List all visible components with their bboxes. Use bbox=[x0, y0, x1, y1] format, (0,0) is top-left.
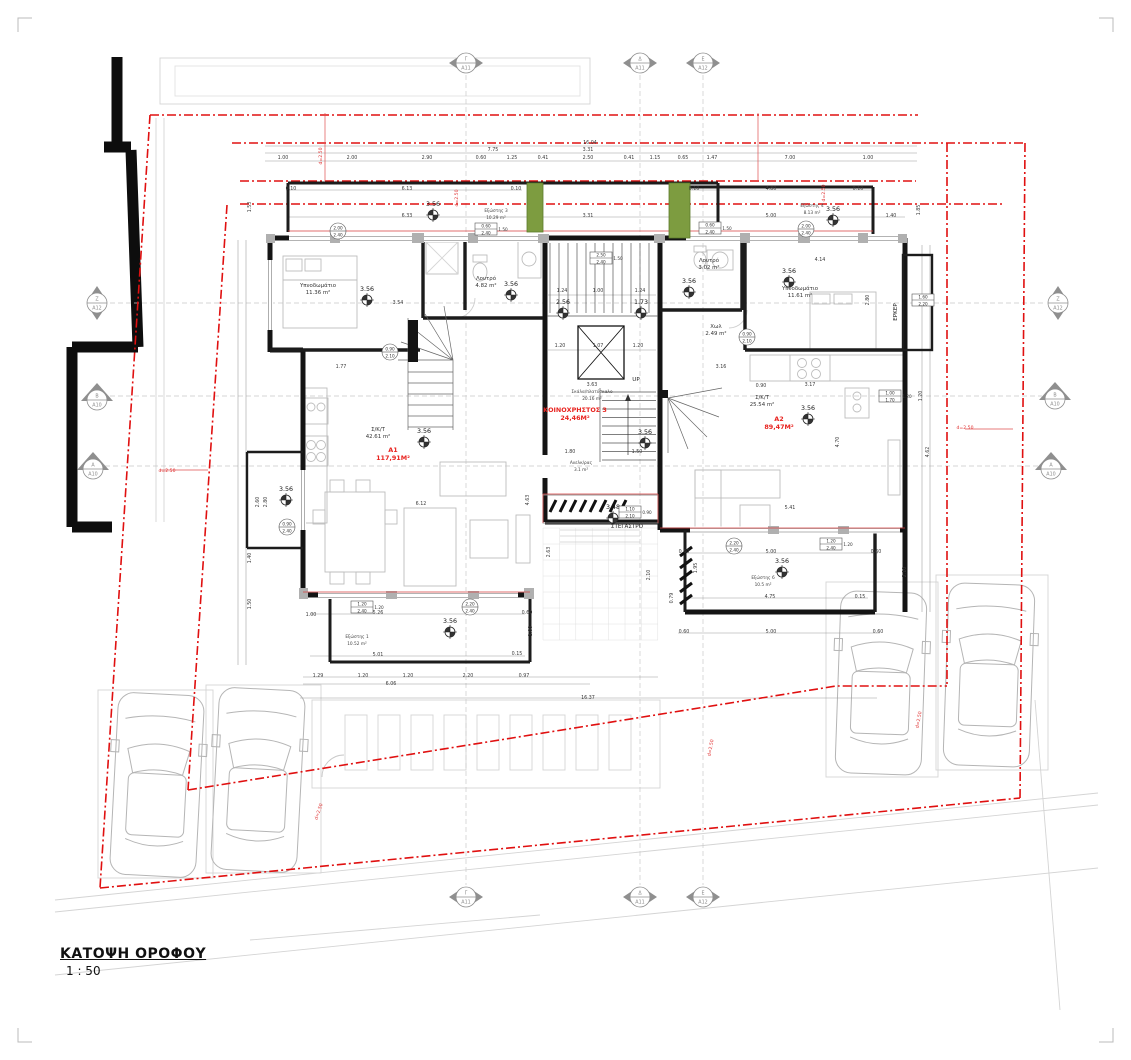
dimension-text: 1.07 bbox=[593, 343, 604, 349]
room-name: Εξώστης 3 bbox=[484, 207, 508, 214]
dimension-text: 0.60 bbox=[522, 610, 533, 616]
dimension-text: 1.80 bbox=[565, 449, 576, 455]
level-value: 3.56 bbox=[360, 286, 374, 293]
room-area: 4.82 m² bbox=[475, 282, 496, 289]
opening-tag-bottom: 2.40 bbox=[465, 609, 475, 614]
setback-note: d=2.50 bbox=[957, 425, 974, 431]
dimension-text: 2.60 bbox=[255, 497, 261, 508]
grid-letter: Ε bbox=[701, 57, 704, 63]
dimension-text: 16.04 bbox=[583, 140, 597, 146]
dimension-text: 0.60 bbox=[871, 549, 882, 555]
dimension-text: 4.70 bbox=[835, 437, 841, 448]
dimension-text: 2.10 bbox=[902, 567, 908, 578]
opening-tag-bottom: 2.40 bbox=[826, 546, 836, 551]
planters bbox=[527, 183, 690, 238]
plan-note: ΣΤΕΓΑΣΤΡΟ bbox=[611, 524, 644, 530]
opening-tag-bottom: 2.20 bbox=[918, 302, 928, 307]
plan-note: ΕΡΚΕΡ bbox=[893, 303, 899, 321]
setback-note: d=2.50 bbox=[318, 147, 324, 164]
setback-note: d=2.50 bbox=[314, 803, 325, 821]
dimension-text: 1.20 bbox=[555, 343, 566, 349]
dimension-text: 1.00 bbox=[593, 288, 604, 294]
dimension-text: 1.40 bbox=[886, 213, 897, 219]
dimension-text: 1.00 bbox=[306, 612, 317, 618]
level-value: 3.56 bbox=[417, 428, 431, 435]
apartment-id: ΚΟΙΝΟΧΡΗΣΤΟΣ 3 bbox=[543, 406, 607, 414]
dimension-text: 1.20 bbox=[633, 343, 644, 349]
dimension-text: 3.16 bbox=[716, 364, 727, 370]
room-area: 10.5 m² bbox=[755, 582, 772, 588]
dimension-text: 3.54 bbox=[393, 300, 404, 306]
site-context bbox=[55, 58, 1098, 1010]
room-area: 3.02 m² bbox=[698, 264, 719, 271]
dimension-text: 6.12 bbox=[416, 501, 427, 507]
level-value: 3.56 bbox=[801, 405, 815, 412]
opening-tag-top: 0.60 bbox=[705, 223, 715, 228]
room-name: Εξώστης 4 bbox=[800, 202, 824, 209]
dimension-text: 6.13 bbox=[402, 186, 413, 192]
apartment-area: 117,91Μ² bbox=[376, 454, 410, 462]
dimension-text: 6.33 bbox=[402, 213, 413, 219]
room-name: Εξώστης 6 bbox=[751, 574, 775, 581]
grid-letter: Γ bbox=[465, 57, 468, 63]
dimension-text: 0.60 bbox=[679, 629, 690, 635]
grid-sheet: A11 bbox=[635, 66, 644, 72]
level-value: 2.56 bbox=[556, 299, 570, 306]
entry-paving bbox=[543, 528, 658, 640]
car-icon bbox=[938, 582, 1040, 767]
opening-tag-top: 1.60 bbox=[918, 295, 928, 300]
opening-tag-side: 1.20 bbox=[902, 394, 912, 399]
setback-note: d=2.50 bbox=[707, 739, 716, 757]
opening-tag-top: 0.90 bbox=[385, 347, 395, 352]
dimension-text: 2.80 bbox=[865, 295, 871, 306]
dimension-text: 1.95 bbox=[693, 563, 699, 574]
room-name: Σ/Κ/Τ bbox=[755, 395, 770, 401]
dimension-text: 4.75 bbox=[765, 594, 776, 600]
dimension-text: 4.14 bbox=[815, 257, 826, 263]
level-value: 3.48 bbox=[606, 504, 620, 511]
opening-tag-top: 1.20 bbox=[826, 539, 836, 544]
room-name: Υπνοδωμάτιο bbox=[299, 282, 336, 289]
opening-tag-top: 2.00 bbox=[333, 226, 343, 231]
room-name: Ανελκ/ρας bbox=[570, 460, 593, 466]
dimension-text: 5.00 bbox=[766, 549, 777, 555]
level-value: 3.56 bbox=[279, 486, 293, 493]
dimension-text: 0.90 bbox=[756, 383, 767, 389]
opening-tag-side: 1.20 bbox=[374, 605, 384, 610]
dimension-text: 1.85 bbox=[916, 205, 922, 216]
grid-sheet: A10 bbox=[1046, 472, 1055, 478]
grid-sheet: A11 bbox=[635, 900, 644, 906]
apartment-area: 89,47Μ² bbox=[764, 423, 794, 431]
opening-tag-top: 2.20 bbox=[729, 541, 739, 546]
dimension-text: 0.41 bbox=[538, 155, 549, 161]
apartment-id: A2 bbox=[774, 415, 783, 423]
opening-tag-bottom: 1.70 bbox=[885, 398, 895, 403]
opening-tag-side: 0.90 bbox=[642, 510, 652, 515]
room-area: 2.49 m² bbox=[705, 330, 726, 337]
parked-cars bbox=[104, 582, 1040, 878]
level-value: 1.73 bbox=[634, 299, 648, 306]
dimension-text: 5.01 bbox=[373, 652, 384, 658]
dimension-text: 1.50 bbox=[632, 449, 643, 455]
level-value: 3.56 bbox=[504, 281, 518, 288]
grid-sheet: A10 bbox=[92, 403, 101, 409]
level-value: 3.56 bbox=[443, 618, 457, 625]
opening-tag-top: 2.20 bbox=[465, 602, 475, 607]
dimension-text: 5.41 bbox=[785, 505, 796, 511]
dimension-text: 6.06 bbox=[386, 681, 397, 687]
setback-note: d=2.50 bbox=[454, 189, 460, 206]
room-area: 10.29 m² bbox=[486, 215, 506, 221]
grid-letter: Β bbox=[95, 394, 98, 400]
setback-note: d=2.50 bbox=[821, 184, 827, 201]
dimension-text: 2.10 bbox=[646, 570, 652, 581]
dimension-text: 1.25 bbox=[507, 155, 518, 161]
dimension-text: 7.00 bbox=[785, 155, 796, 161]
dimension-text: 1.77 bbox=[336, 364, 347, 370]
room-area: 11.61 m² bbox=[788, 292, 813, 299]
balcony-parapets bbox=[247, 183, 932, 662]
dimension-text: 3.17 bbox=[805, 382, 816, 388]
grid-sheet: A12 bbox=[698, 900, 707, 906]
dimension-text: 1.47 bbox=[707, 155, 718, 161]
opening-tag-bottom: 2.10 bbox=[625, 514, 635, 519]
dimension-text: 0.10 bbox=[853, 186, 864, 192]
opening-tag-side: 1.50 bbox=[498, 227, 508, 232]
dimension-text: 2.50 bbox=[583, 155, 594, 161]
grid-sheet: A10 bbox=[88, 472, 97, 478]
dimension-text: 1.53 bbox=[247, 202, 253, 213]
grid-letter: Ε bbox=[701, 891, 704, 897]
dimension-text: 0.60 bbox=[679, 549, 690, 555]
apartment-id: A1 bbox=[388, 446, 397, 454]
opening-tag-bottom: 2.40 bbox=[729, 548, 739, 553]
dimension-text: 1.50 bbox=[247, 599, 253, 610]
dimension-text: 2.20 bbox=[463, 673, 474, 679]
dimension-text: 1.15 bbox=[650, 155, 661, 161]
dimension-text: 1.20 bbox=[918, 391, 924, 402]
drawing-scale: 1 : 50 bbox=[66, 964, 206, 978]
apartment-area: 24,46Μ² bbox=[560, 414, 590, 422]
grid-letter: Β bbox=[1053, 393, 1056, 399]
dimension-text: 4.63 bbox=[525, 495, 531, 506]
level-value: 3.56 bbox=[826, 206, 840, 213]
level-value: 3.56 bbox=[782, 268, 796, 275]
dimension-text: 0.60 bbox=[476, 155, 487, 161]
dimension-text: 0.41 bbox=[624, 155, 635, 161]
opening-tag-bottom: 2.10 bbox=[742, 339, 752, 344]
opening-tag-bottom: 2.40 bbox=[801, 231, 811, 236]
dimension-text: 4.80 bbox=[766, 186, 777, 192]
opening-tag-top: 0.90 bbox=[742, 332, 752, 337]
dimension-text: 1.00 bbox=[528, 626, 534, 637]
dimension-text: 0.10 bbox=[689, 186, 700, 192]
floor-plan-canvas: 16.047.753.311.002.002.900.601.250.412.5… bbox=[0, 0, 1131, 1060]
opening-tag-bottom: 2.10 bbox=[385, 354, 395, 359]
grid-sheet: A12 bbox=[92, 306, 101, 312]
opening-tag-bottom: 2.40 bbox=[705, 230, 715, 235]
dimension-text: 1.24 bbox=[557, 288, 568, 294]
room-name: Σκάλα/πλατύσκαλο bbox=[571, 388, 613, 395]
drawing-title: ΚΑΤΟΨΗ ΟΡΟΦΟΥ bbox=[60, 946, 206, 962]
dimension-text: 0.65 bbox=[678, 155, 689, 161]
dimension-text: 2.00 bbox=[347, 155, 358, 161]
opening-tag-bottom: 2.40 bbox=[596, 260, 606, 265]
car-icon bbox=[830, 590, 932, 775]
room-area: 42.61 m² bbox=[366, 433, 391, 440]
dimension-text: 3.63 bbox=[587, 382, 598, 388]
dimension-text: 0.15 bbox=[512, 651, 523, 657]
opening-tag-side: 1.50 bbox=[613, 256, 623, 261]
room-name: Χωλ bbox=[710, 324, 722, 330]
opening-tag-top: 0.90 bbox=[282, 522, 292, 527]
opening-tag-top: 1.10 bbox=[625, 507, 635, 512]
dimension-text: 16.37 bbox=[581, 695, 595, 701]
dimension-text: 4.62 bbox=[925, 447, 931, 458]
grid-sheet: A10 bbox=[1050, 402, 1059, 408]
dimension-text: 5.00 bbox=[766, 629, 777, 635]
car-icon bbox=[205, 687, 310, 874]
room-area: 20.16 m² bbox=[582, 396, 602, 402]
opening-tag-bottom: 2.40 bbox=[333, 233, 343, 238]
dimension-text: 1.20 bbox=[358, 673, 369, 679]
opening-tag-top: 2.00 bbox=[801, 224, 811, 229]
setback-note: d=2.50 bbox=[159, 468, 176, 474]
stair-a2 bbox=[660, 388, 722, 453]
dimension-text: 1.29 bbox=[313, 673, 324, 679]
room-name: Λουτρό bbox=[476, 275, 496, 282]
room-name: Σ/Κ/Τ bbox=[371, 427, 386, 433]
opening-tag-side: 1.20 bbox=[843, 542, 853, 547]
level-value: 3.56 bbox=[775, 558, 789, 565]
car-icon bbox=[104, 692, 209, 879]
dimension-text: 1.00 bbox=[278, 155, 289, 161]
dimension-text: 3.31 bbox=[583, 147, 594, 153]
dimension-text: 0.97 bbox=[519, 673, 530, 679]
grid-sheet: A12 bbox=[698, 66, 707, 72]
room-area: 3.1 m² bbox=[574, 467, 588, 473]
entry-canopy bbox=[543, 495, 692, 604]
dimension-text: 0.10 bbox=[286, 186, 297, 192]
opening-tag-bottom: 2.40 bbox=[481, 231, 491, 236]
grid-sheet: A12 bbox=[1053, 306, 1062, 312]
dimension-text: 2.80 bbox=[263, 497, 269, 508]
grid-letter: Γ bbox=[465, 891, 468, 897]
opening-tag-top: 1.00 bbox=[885, 391, 895, 396]
dimension-text: 0.15 bbox=[855, 594, 866, 600]
grid-sheet: A11 bbox=[461, 66, 470, 72]
room-area: 11.36 m² bbox=[306, 289, 331, 296]
opening-tag-bottom: 2.40 bbox=[282, 529, 292, 534]
room-area: 10.52 m² bbox=[347, 641, 367, 647]
room-area: 25.54 m² bbox=[750, 401, 775, 408]
dimension-text: 7.75 bbox=[488, 147, 499, 153]
opening-tag-top: 2.50 bbox=[596, 253, 606, 258]
dimension-text: 3.31 bbox=[583, 213, 594, 219]
level-value: 3.56 bbox=[426, 201, 440, 208]
opening-tag-top: 1.20 bbox=[357, 602, 367, 607]
level-value: 3.56 bbox=[682, 278, 696, 285]
room-area: 8.13 m² bbox=[804, 210, 821, 216]
plan-note: UP bbox=[632, 377, 640, 383]
dimension-text: 0.79 bbox=[669, 593, 675, 604]
room-name: Εξώστης 1 bbox=[345, 633, 369, 640]
dimension-text: 2.63 bbox=[546, 547, 552, 558]
dimension-text: 1.24 bbox=[635, 288, 646, 294]
title-block: ΚΑΤΟΨΗ ΟΡΟΦΟΥ 1 : 50 bbox=[60, 946, 206, 978]
room-name: Λουτρό bbox=[699, 257, 719, 264]
dimension-text: 5.00 bbox=[766, 213, 777, 219]
level-value: 3.56 bbox=[638, 429, 652, 436]
grid-sheet: A11 bbox=[461, 900, 470, 906]
dimension-text: 1.00 bbox=[863, 155, 874, 161]
drawing-sheet: 16.047.753.311.002.002.900.601.250.412.5… bbox=[0, 0, 1131, 1060]
dimension-text: 2.90 bbox=[422, 155, 433, 161]
dimension-text: 0.60 bbox=[873, 629, 884, 635]
dimension-text: 0.10 bbox=[511, 186, 522, 192]
dimension-text: 1.40 bbox=[247, 553, 253, 564]
dimension-text: 1.20 bbox=[403, 673, 414, 679]
opening-tag-side: 1.50 bbox=[722, 226, 732, 231]
opening-tag-top: 0.60 bbox=[481, 224, 491, 229]
stair-a1 bbox=[398, 306, 453, 430]
opening-tag-bottom: 2.40 bbox=[357, 609, 367, 614]
dimension-text: 5.26 bbox=[373, 610, 384, 616]
